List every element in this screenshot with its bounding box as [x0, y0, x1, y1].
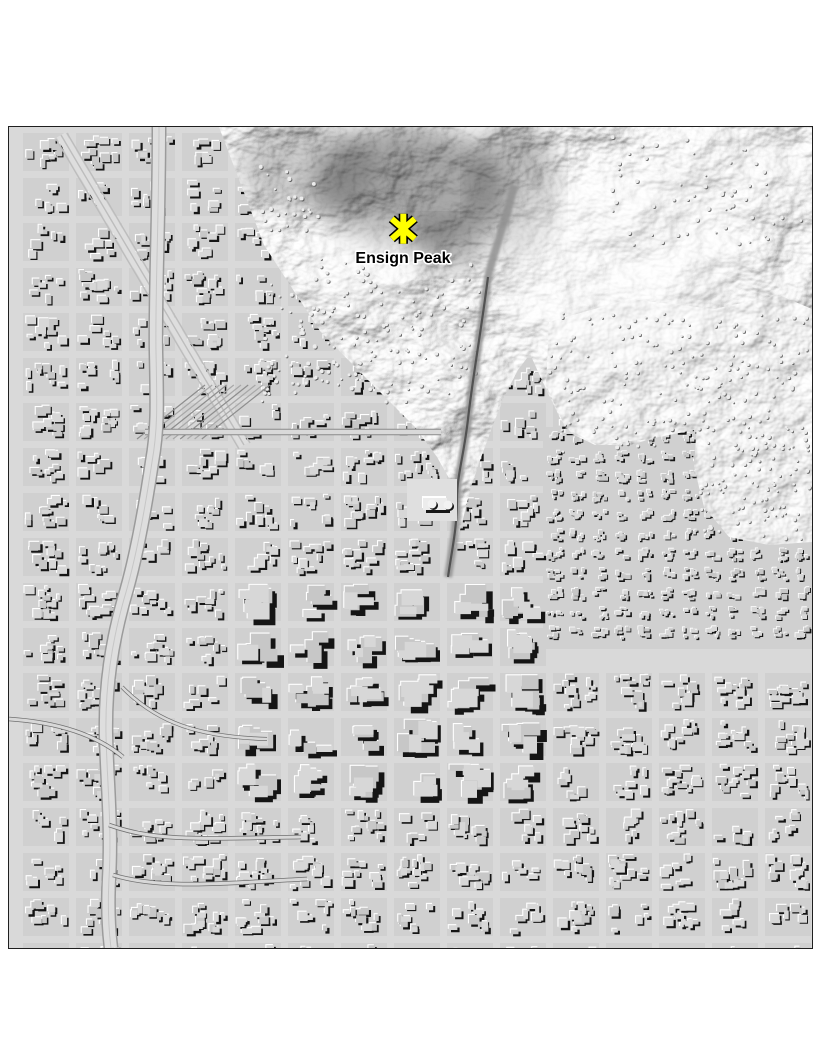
domed-building-complex	[407, 479, 457, 521]
hillshade-map: Ensign Peak	[8, 126, 813, 949]
document-page: Ensign Peak	[0, 0, 816, 1056]
ensign-peak-label: Ensign Peak	[355, 250, 450, 267]
map-canvas: Ensign Peak	[9, 127, 812, 948]
